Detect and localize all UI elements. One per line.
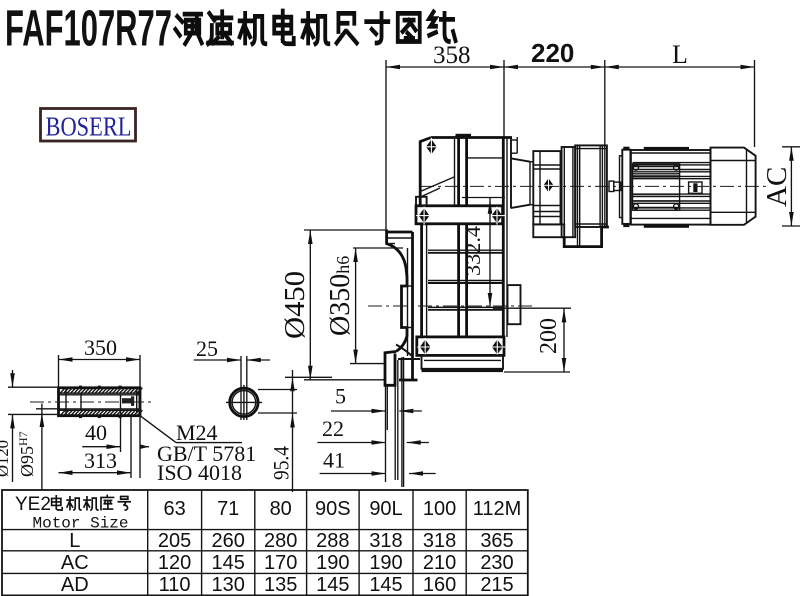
svg-text:Ø95H7: Ø95H7 (16, 431, 37, 477)
svg-text:120: 120 (158, 552, 191, 574)
svg-text:22: 22 (322, 416, 344, 441)
svg-text:170: 170 (264, 552, 297, 574)
svg-text:318: 318 (423, 530, 456, 552)
svg-text:41: 41 (323, 448, 345, 473)
svg-text:145: 145 (212, 552, 245, 574)
svg-text:L: L (672, 40, 688, 69)
svg-text:135: 135 (264, 574, 297, 596)
svg-text:260: 260 (212, 530, 245, 552)
svg-text:358: 358 (433, 42, 471, 69)
svg-text:BOSERL: BOSERL (46, 112, 132, 142)
svg-text:Ø350h6: Ø350h6 (325, 256, 356, 336)
svg-text:5: 5 (335, 384, 346, 409)
svg-text:25: 25 (196, 336, 218, 361)
svg-text:95.4: 95.4 (269, 446, 294, 480)
svg-text:220: 220 (531, 38, 574, 68)
svg-text:160: 160 (423, 574, 456, 596)
svg-text:190: 190 (369, 552, 402, 574)
svg-text:63: 63 (163, 498, 185, 520)
svg-text:YE2: YE2 (15, 494, 51, 515)
svg-text:215: 215 (480, 574, 513, 596)
svg-text:205: 205 (158, 530, 191, 552)
svg-text:110: 110 (159, 574, 191, 596)
svg-text:313: 313 (84, 448, 117, 473)
svg-text:90L: 90L (369, 498, 402, 520)
svg-text:71: 71 (217, 498, 239, 520)
svg-text:130: 130 (212, 574, 245, 596)
svg-text:Ø450: Ø450 (280, 271, 311, 339)
svg-text:210: 210 (423, 552, 456, 574)
svg-text:L: L (69, 530, 80, 552)
svg-text:80: 80 (270, 498, 292, 520)
svg-text:145: 145 (369, 574, 402, 596)
svg-text:FAF107R77: FAF107R77 (5, 0, 172, 57)
svg-text:40: 40 (85, 420, 107, 445)
svg-text:AC: AC (761, 167, 793, 207)
svg-text:280: 280 (264, 530, 297, 552)
svg-text:AC: AC (61, 552, 89, 574)
svg-text:100: 100 (423, 498, 456, 520)
svg-text:350: 350 (84, 335, 117, 360)
svg-text:145: 145 (316, 574, 349, 596)
svg-text:230: 230 (480, 552, 513, 574)
svg-text:318: 318 (369, 530, 402, 552)
svg-text:90S: 90S (315, 498, 351, 520)
svg-text:200: 200 (536, 318, 562, 354)
svg-text:AD: AD (61, 574, 89, 596)
svg-text:288: 288 (316, 530, 349, 552)
svg-text:Ø120: Ø120 (0, 440, 12, 477)
svg-text:365: 365 (480, 530, 513, 552)
svg-text:ISO 4018: ISO 4018 (157, 460, 242, 485)
svg-text:190: 190 (316, 552, 349, 574)
svg-text:112M: 112M (473, 498, 522, 520)
svg-text:332.4: 332.4 (461, 225, 485, 276)
svg-text:Motor Size: Motor Size (32, 515, 128, 533)
